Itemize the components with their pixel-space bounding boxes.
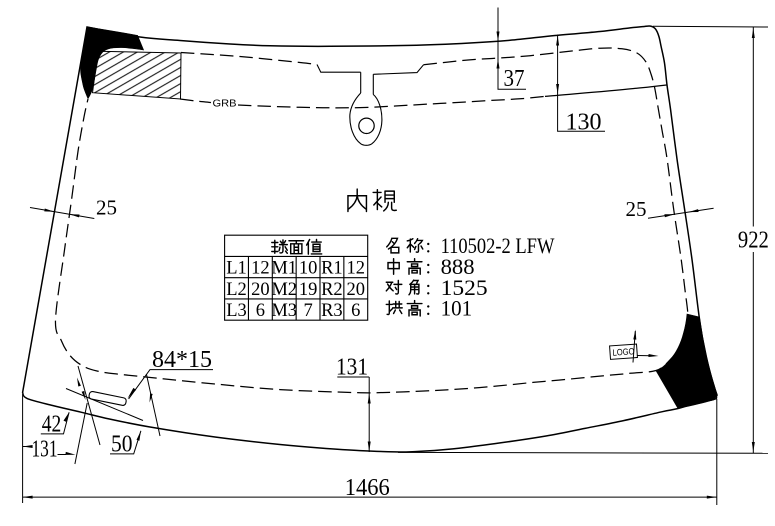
svg-text:L3: L3 xyxy=(226,301,247,321)
svg-text:R3: R3 xyxy=(321,301,343,321)
svg-text:GRB: GRB xyxy=(213,98,237,110)
svg-text:R2: R2 xyxy=(321,280,343,300)
svg-text:131: 131 xyxy=(32,437,58,463)
svg-text:LOGO: LOGO xyxy=(612,346,635,358)
svg-text:6: 6 xyxy=(256,301,265,321)
svg-text::: : xyxy=(426,277,432,299)
svg-text:20: 20 xyxy=(347,280,366,300)
svg-text:101: 101 xyxy=(441,296,473,321)
svg-text:130: 130 xyxy=(566,110,602,136)
svg-text:6: 6 xyxy=(351,301,360,321)
svg-text:50: 50 xyxy=(111,432,133,458)
svg-text:M2: M2 xyxy=(271,280,297,300)
svg-text:M1: M1 xyxy=(271,259,297,279)
svg-text:L1: L1 xyxy=(226,259,247,279)
svg-text:922: 922 xyxy=(738,228,769,254)
svg-text:7: 7 xyxy=(303,301,312,321)
svg-text:131: 131 xyxy=(336,355,368,381)
svg-text:20: 20 xyxy=(251,280,270,300)
svg-text::: : xyxy=(426,236,432,258)
svg-text:19: 19 xyxy=(299,280,318,300)
svg-text:12: 12 xyxy=(251,259,270,279)
svg-text:10: 10 xyxy=(299,259,318,279)
svg-text:L2: L2 xyxy=(226,280,247,300)
svg-text:25: 25 xyxy=(96,196,117,220)
svg-text:12: 12 xyxy=(347,259,366,279)
svg-text:42: 42 xyxy=(42,412,62,438)
svg-text::: : xyxy=(426,256,432,278)
svg-text:25: 25 xyxy=(626,197,647,221)
svg-text:M3: M3 xyxy=(271,301,297,321)
svg-text:37: 37 xyxy=(504,66,525,92)
svg-text:1466: 1466 xyxy=(345,475,390,501)
svg-text::: : xyxy=(426,298,432,320)
svg-text:84*15: 84*15 xyxy=(152,347,212,373)
svg-text:R1: R1 xyxy=(321,259,343,279)
